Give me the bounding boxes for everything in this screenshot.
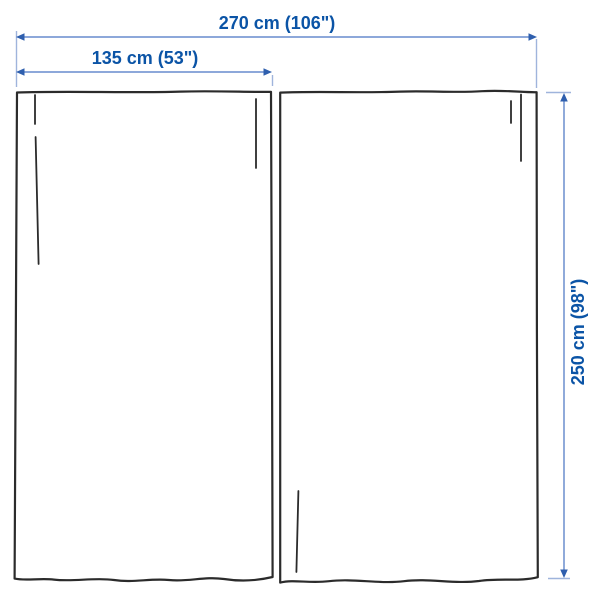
curtain-dimension-diagram: 270 cm (106") 135 cm (53") 250 cm (98") <box>0 0 600 600</box>
curtain-panel-right <box>280 91 538 583</box>
diagram-canvas: 270 cm (106") 135 cm (53") 250 cm (98") <box>0 0 600 600</box>
curtain-panel-left <box>15 91 273 581</box>
arrowhead-up-icon <box>560 93 568 102</box>
height-label: 250 cm (98") <box>568 279 588 386</box>
panel-width-label: 135 cm (53") <box>92 48 199 68</box>
arrowhead-left-icon <box>16 68 25 76</box>
dimension-panel-width: 135 cm (53") <box>16 48 273 86</box>
arrowhead-right-icon <box>529 33 538 41</box>
arrowhead-down-icon <box>560 570 568 579</box>
arrowhead-left-icon <box>16 33 25 41</box>
total-width-label: 270 cm (106") <box>219 13 336 33</box>
arrowhead-right-icon <box>264 68 273 76</box>
dimension-height: 250 cm (98") <box>546 93 588 579</box>
curtain-panels <box>15 91 538 583</box>
